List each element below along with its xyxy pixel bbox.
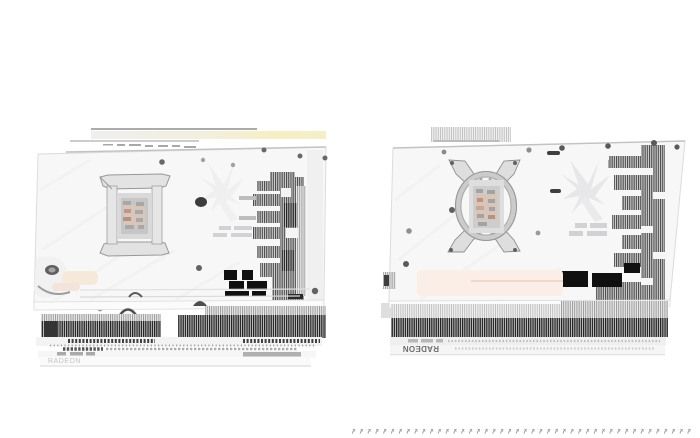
svg-text:RADEON: RADEON bbox=[403, 344, 439, 353]
svg-text:RADEON: RADEON bbox=[48, 358, 81, 365]
